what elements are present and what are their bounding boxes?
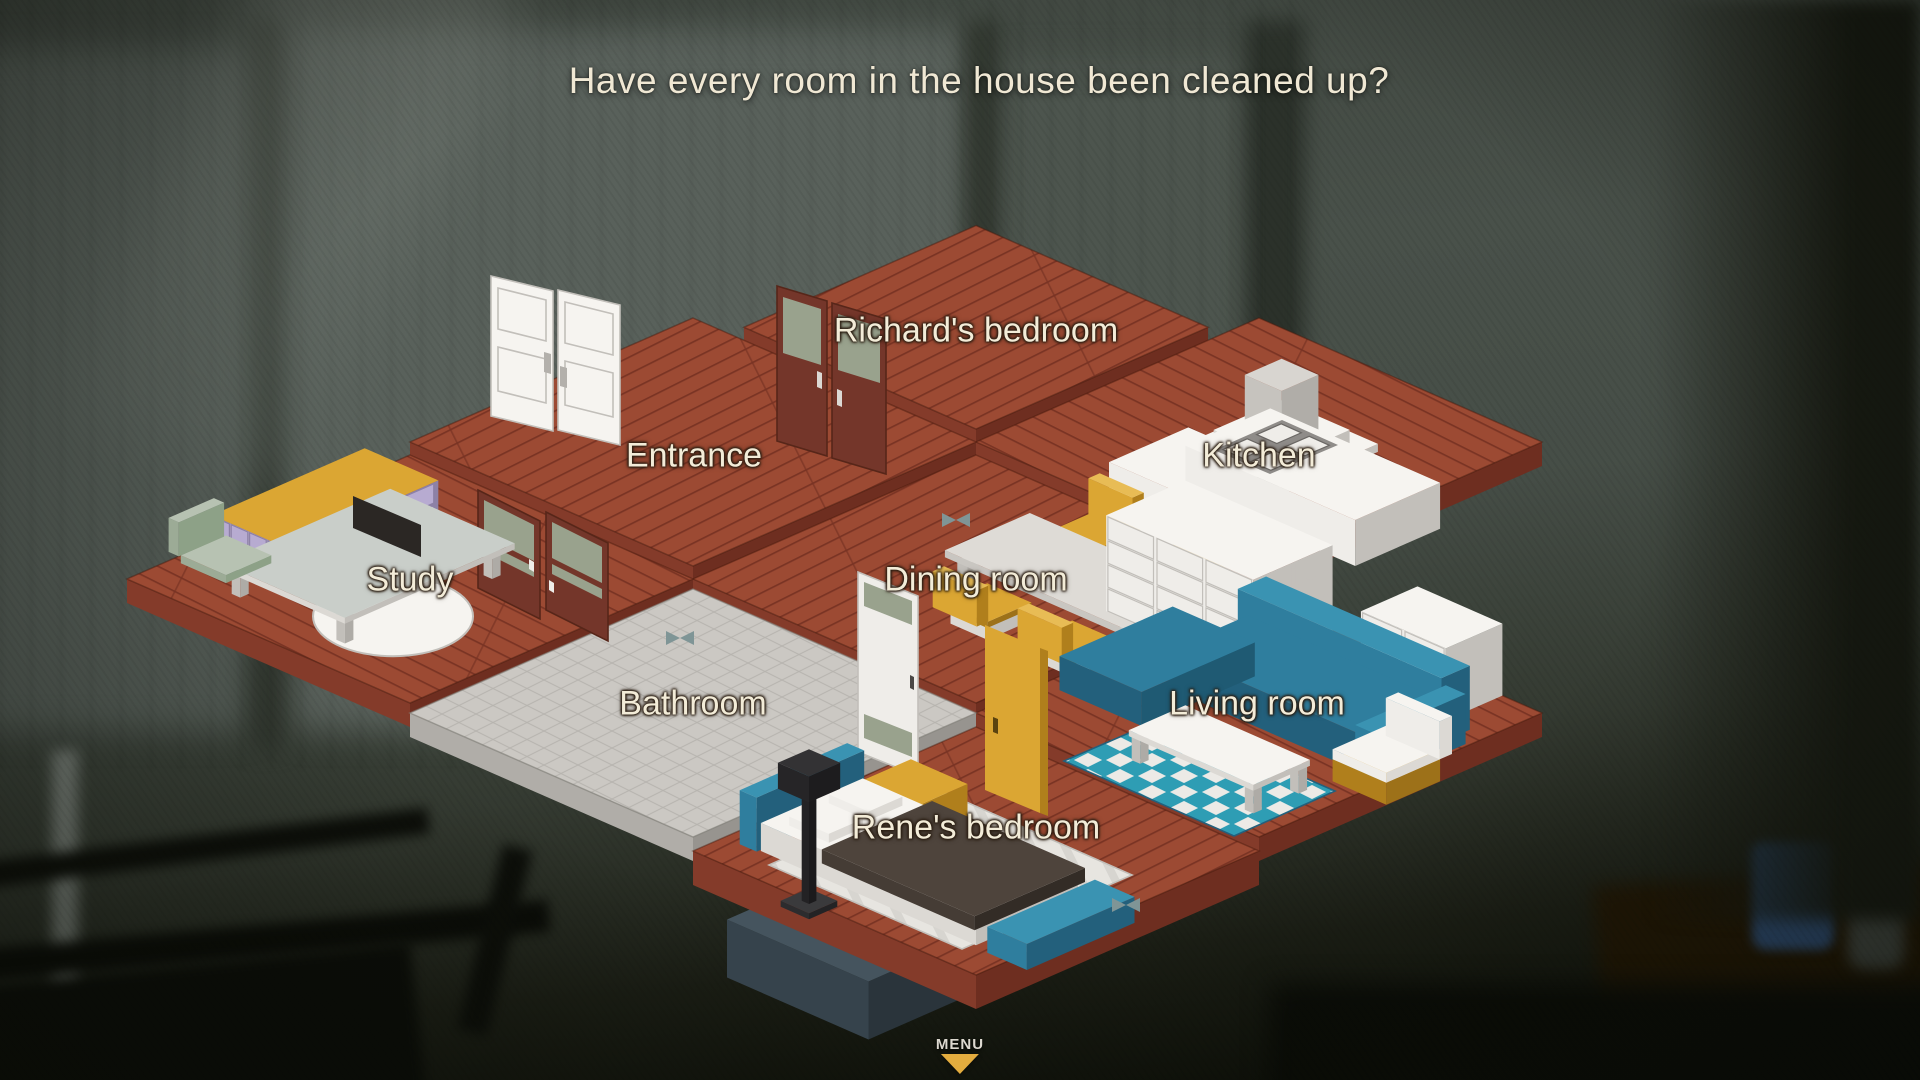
door-handle: [993, 717, 998, 734]
triangle-down-icon[interactable]: [941, 1054, 979, 1074]
room-label-bathroom[interactable]: Bathroom: [619, 685, 766, 724]
menu-label[interactable]: MENU: [936, 1036, 984, 1053]
isometric-house-map[interactable]: [0, 0, 1920, 1080]
room-label-entrance[interactable]: Entrance: [626, 437, 762, 476]
room-label-living-room[interactable]: Living room: [1169, 685, 1345, 724]
room-label-richards-bedroom[interactable]: Richard's bedroom: [834, 312, 1118, 351]
door-handle: [837, 389, 842, 407]
renes-door-edge: [1040, 648, 1048, 816]
room-label-renes-bedroom[interactable]: Rene's bedroom: [852, 809, 1100, 848]
door-handle: [817, 371, 822, 389]
question-title: Have every room in the house been cleane…: [569, 60, 1390, 102]
floor-lamp-pole: [802, 786, 817, 904]
room-label-dining-room[interactable]: Dining room: [884, 561, 1067, 600]
door-handle: [560, 366, 567, 388]
door-handle: [544, 352, 551, 374]
richards-door-glass: [783, 297, 821, 365]
room-label-study[interactable]: Study: [367, 561, 454, 600]
room-label-kitchen[interactable]: Kitchen: [1202, 437, 1315, 476]
menu-button[interactable]: MENU: [936, 1036, 984, 1074]
door-handle: [910, 675, 914, 690]
